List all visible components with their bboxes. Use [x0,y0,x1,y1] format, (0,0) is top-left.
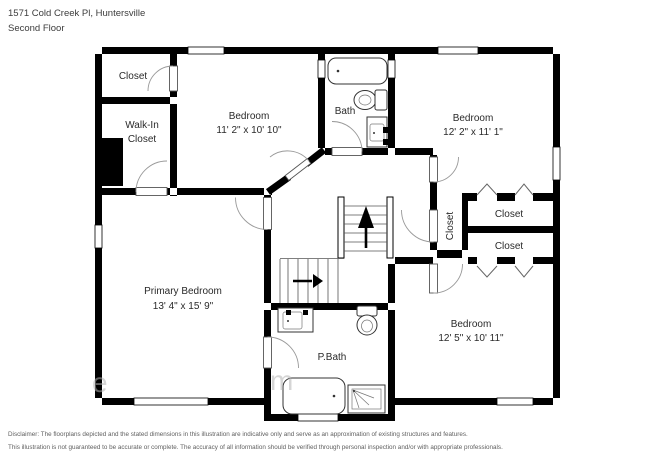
fixture-nub [383,127,388,133]
sink-faucet [373,132,375,134]
fixture-nub [303,310,308,315]
door-swing-arc [402,210,434,242]
door-closet-top-left [148,66,178,91]
door-bedroom-bottom-right [430,264,463,293]
room-label-walk-in-closet-line2: Closet [128,134,157,145]
bathtub-drain [337,70,340,73]
door-primary-bath [264,337,299,368]
stair-rail [387,197,393,258]
tub-wall-recess [318,60,325,78]
staircase [280,197,393,303]
sink-faucet [287,320,289,322]
fixture-nub [383,139,388,145]
room-label-closet-right-lower: Closet [495,241,524,252]
door-closet-vertical [402,210,438,242]
door-bedroom-top-right [430,157,459,182]
disclaimer-line2: This illustration is not guaranteed to b… [8,444,503,451]
door-walk-in-closet [136,161,167,196]
bath-fixtures [328,58,388,147]
door-leaf [332,148,362,156]
bathtub-drain [333,395,336,398]
room-label-primary-bedroom: Primary Bedroom [144,286,222,297]
window [497,398,533,405]
room-dimensions-primary-bedroom: 13' 4" x 15' 9" [153,301,214,312]
window [188,47,224,54]
interior-walls [95,47,553,421]
toilet-bowl [354,91,376,110]
watermark-fragment: e [92,367,108,398]
room-label-bedroom-right: Bedroom [453,113,494,124]
room-label-closet-right-upper: Closet [495,209,524,220]
door-primary-bedroom [236,198,272,230]
door-swing-arc [270,151,309,161]
door-leaf [430,210,438,242]
room-label-bath: Bath [335,106,356,117]
bifold-door-icon [477,266,533,277]
room-label-primary-bath: P.Bath [318,352,347,363]
room-label-closet-vertical: Closet [445,212,456,241]
disclaimer-line1: Disclaimer: The floorplans depicted and … [8,431,468,438]
window [553,147,560,180]
window [298,414,338,421]
door-leaf [170,66,178,91]
room-label-bedroom-top: Bedroom [229,111,270,122]
window [438,47,478,54]
window [134,398,208,405]
stair-rail [338,197,344,258]
room-dimensions-bedroom-right: 12' 2" x 11' 1" [443,127,503,138]
door-swing-arc [332,122,362,152]
tub-wall-recess [388,60,395,78]
fixture-nub [286,310,291,315]
door-leaf [430,264,438,293]
door-leaf [285,159,311,181]
watermark-fragment: m [270,365,293,396]
door-leaf [430,157,438,182]
room-label-walk-in-closet-line1: Walk-In [125,120,159,131]
window [95,225,102,248]
stairs-up-arrow-head-icon [358,206,374,228]
door-bath [332,122,362,156]
door-leaf [264,337,272,368]
room-dimensions-bedroom-top: 11' 2" x 10' 10" [216,125,282,136]
floorplan-page: 1571 Cold Creek Pl, Huntersville Second … [0,0,650,460]
door-swing-arc [236,198,268,230]
shower-head [353,390,355,392]
floorplan-drawing: e m Closet Walk-In Closet Bedroom 11' 2"… [0,0,650,460]
toilet-tank [375,90,387,110]
door-bedroom-top-diagonal [270,151,311,181]
room-dimensions-bedroom-bottom-right: 12' 5" x 10' 11" [438,333,504,344]
door-leaf [136,188,167,196]
room-label-bedroom-bottom-right: Bedroom [451,319,492,330]
room-label-closet-top-left: Closet [119,71,148,82]
door-swing-arc [268,337,299,368]
door-leaf [264,198,272,230]
